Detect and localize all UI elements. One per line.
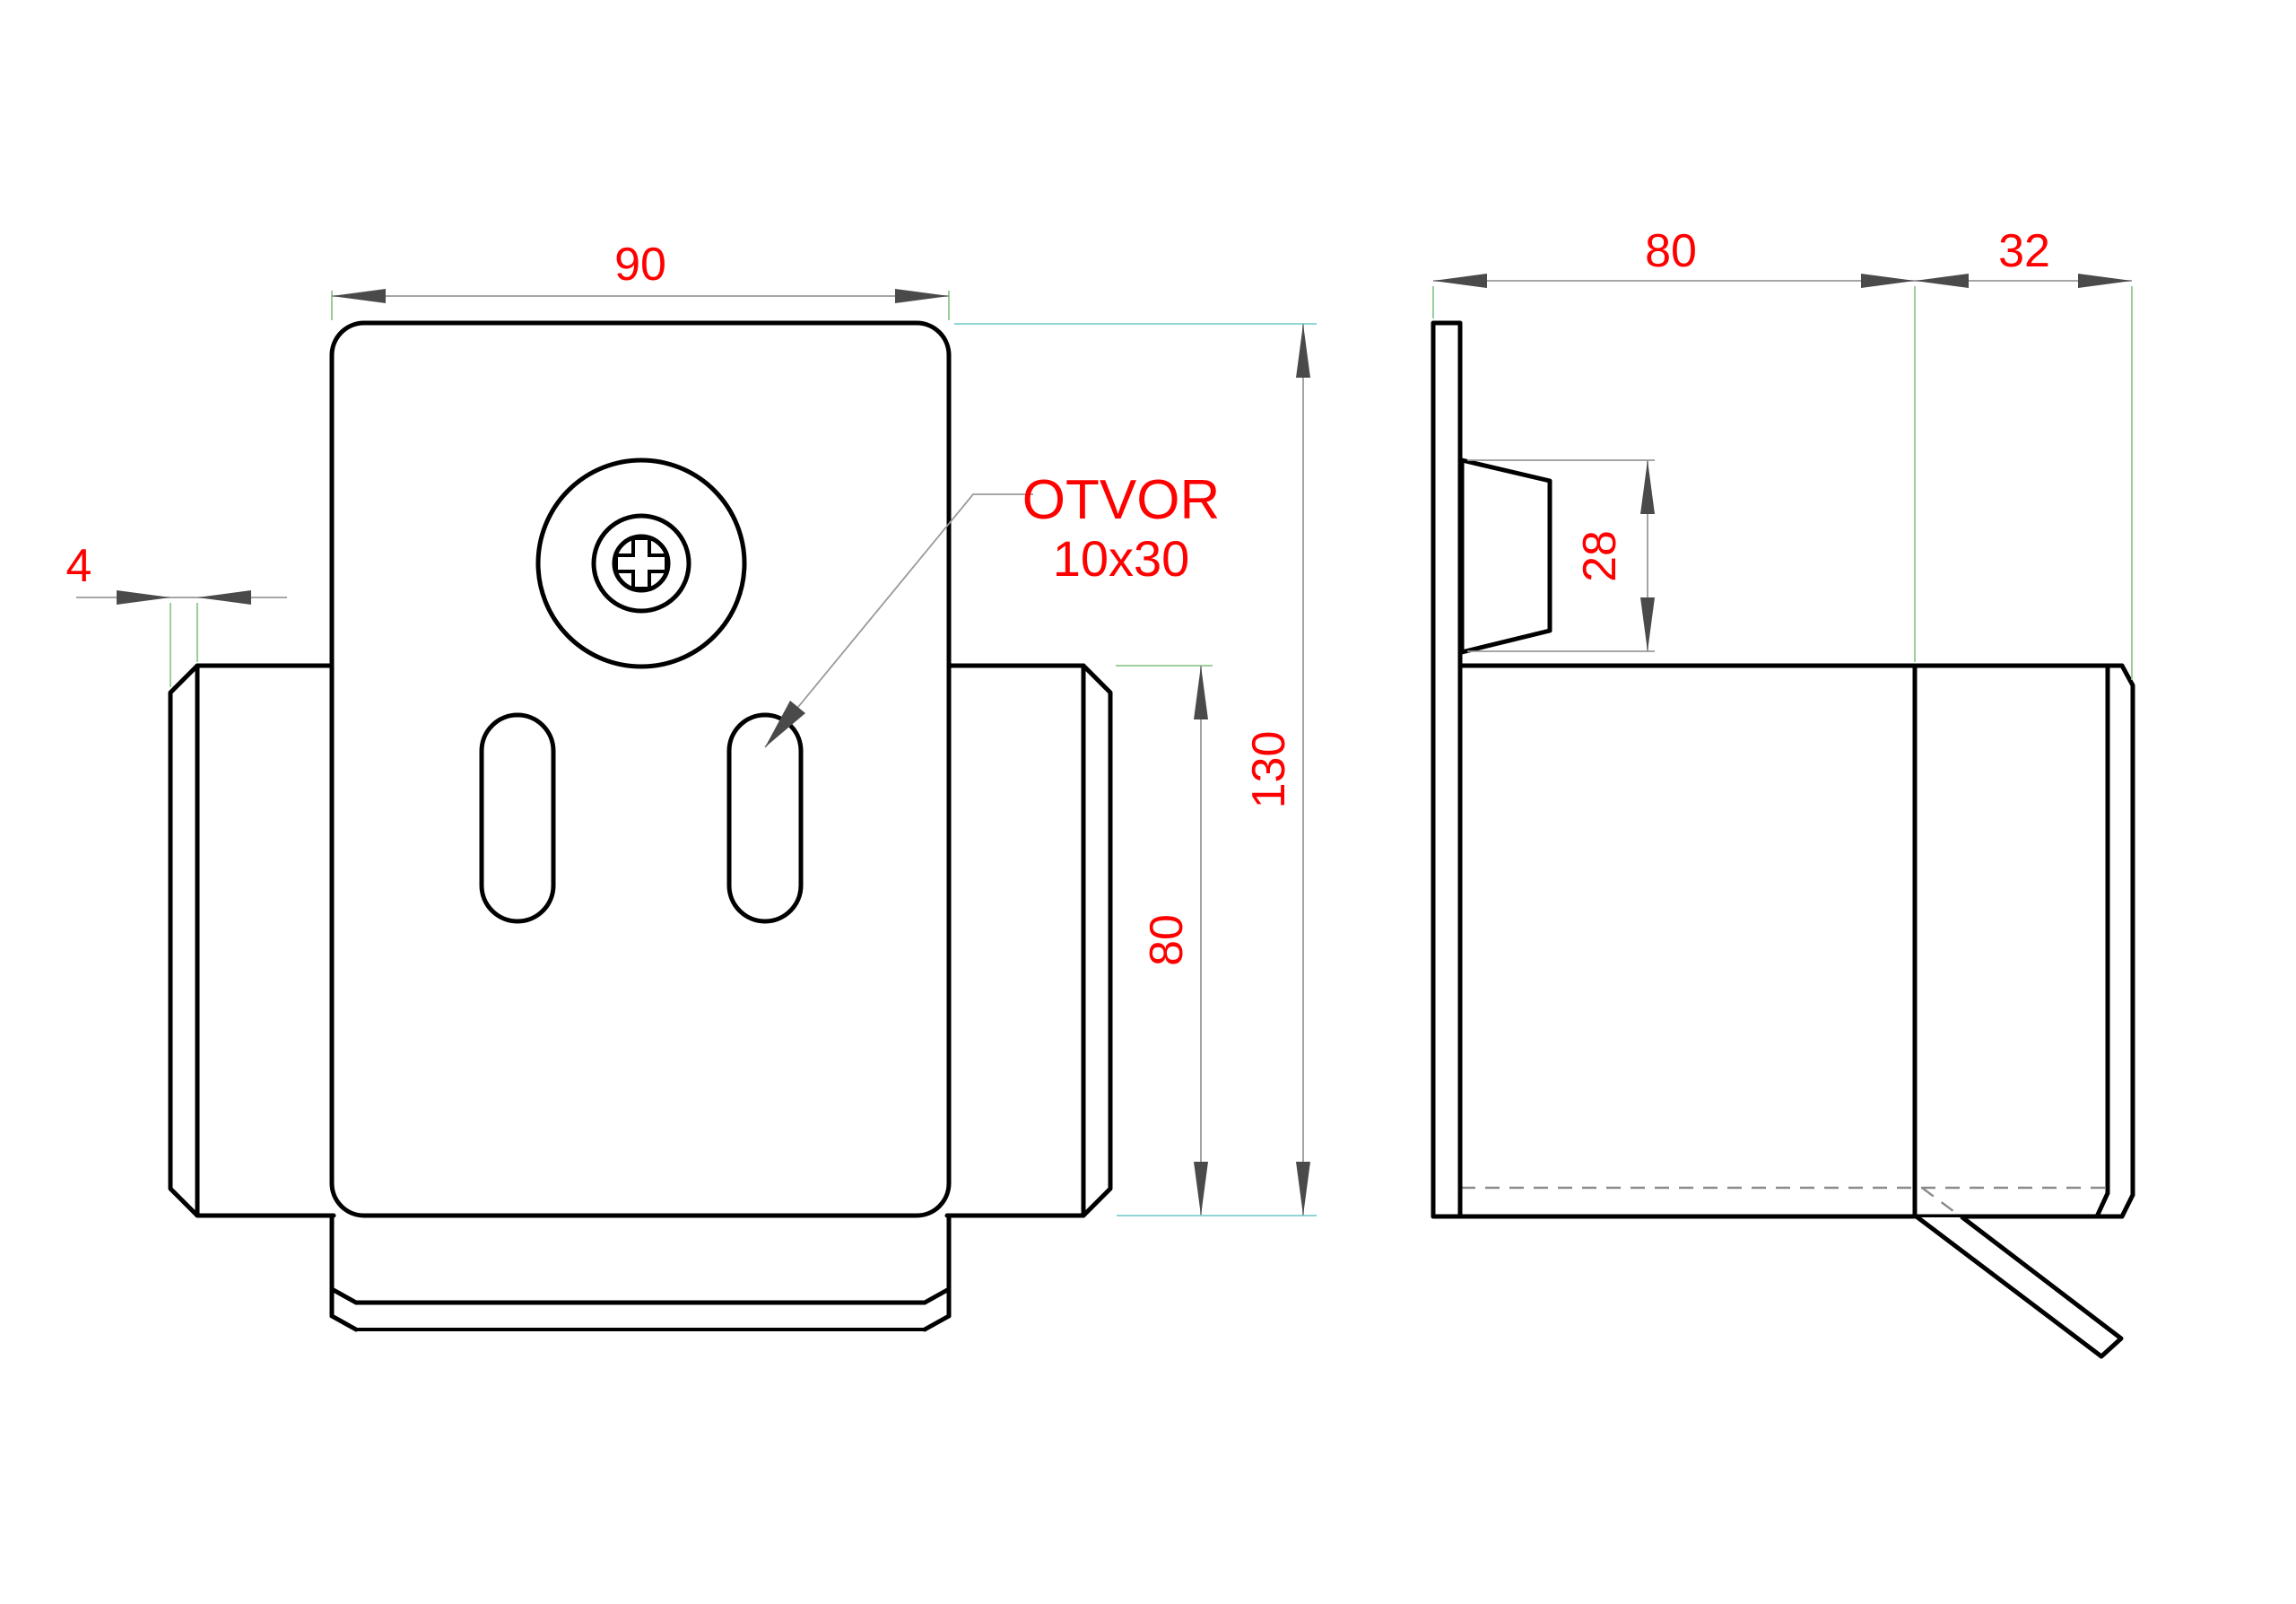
dim-flap-value: 32 bbox=[1998, 225, 2050, 277]
dim-flange-height-value: 80 bbox=[1141, 914, 1193, 966]
arrowhead-left bbox=[1433, 274, 1487, 288]
arrowhead-down bbox=[1640, 597, 1655, 651]
left-flange-front bbox=[170, 666, 334, 1216]
arrowhead-inward-left bbox=[197, 590, 251, 605]
dim-thickness-value: 4 bbox=[66, 540, 92, 592]
arrowhead-up bbox=[1194, 666, 1208, 719]
dim-boss-height-28: 28 bbox=[1467, 460, 1655, 651]
plate-edge-side bbox=[1433, 323, 1460, 1216]
front-view: 90 4 80 130 bbox=[66, 239, 1317, 1329]
arrowhead-inward-right bbox=[117, 590, 170, 605]
arrowhead-right bbox=[1861, 274, 1915, 288]
bent-flap-side bbox=[1918, 1217, 2121, 1356]
arrowhead-down bbox=[1296, 1162, 1310, 1216]
main-plate-front bbox=[332, 323, 949, 1216]
arrowhead-left bbox=[332, 289, 386, 303]
dim-total-height-value: 130 bbox=[1243, 731, 1295, 809]
slot-left bbox=[482, 715, 553, 921]
dim-total-height-130: 130 bbox=[954, 324, 1317, 1216]
callout-size: 10x30 bbox=[1053, 530, 1190, 587]
dim-boss-height-value: 28 bbox=[1574, 530, 1626, 582]
dim-depth-value: 80 bbox=[1645, 225, 1697, 277]
drawing-sheet: 90 4 80 130 bbox=[0, 0, 2296, 1604]
flange-side bbox=[1433, 666, 2133, 1216]
side-view: 80 32 28 bbox=[1433, 225, 2133, 1356]
arrowhead-left bbox=[1915, 274, 1969, 288]
dim-flange-height-80: 80 bbox=[1116, 666, 1213, 1216]
arrowhead-up bbox=[1296, 324, 1310, 378]
arrowhead-up bbox=[1640, 460, 1655, 514]
hidden-lines bbox=[1461, 671, 2106, 1216]
arrowhead-down bbox=[1194, 1162, 1208, 1216]
dim-width-90: 90 bbox=[332, 239, 949, 320]
technical-drawing: 90 4 80 130 bbox=[0, 0, 2296, 1604]
right-flange-front bbox=[947, 666, 1110, 1216]
dim-flap-32: 32 bbox=[1915, 225, 2132, 680]
screw-boss-side bbox=[1462, 460, 1550, 652]
arrowhead-right bbox=[895, 289, 949, 303]
callout-title: OTVOR bbox=[1022, 469, 1220, 531]
slot-right bbox=[729, 715, 801, 921]
dim-depth-80: 80 bbox=[1433, 225, 1915, 662]
dim-width-value: 90 bbox=[614, 239, 666, 291]
arrowhead-right bbox=[2078, 274, 2132, 288]
bottom-flap-front bbox=[332, 1216, 949, 1329]
